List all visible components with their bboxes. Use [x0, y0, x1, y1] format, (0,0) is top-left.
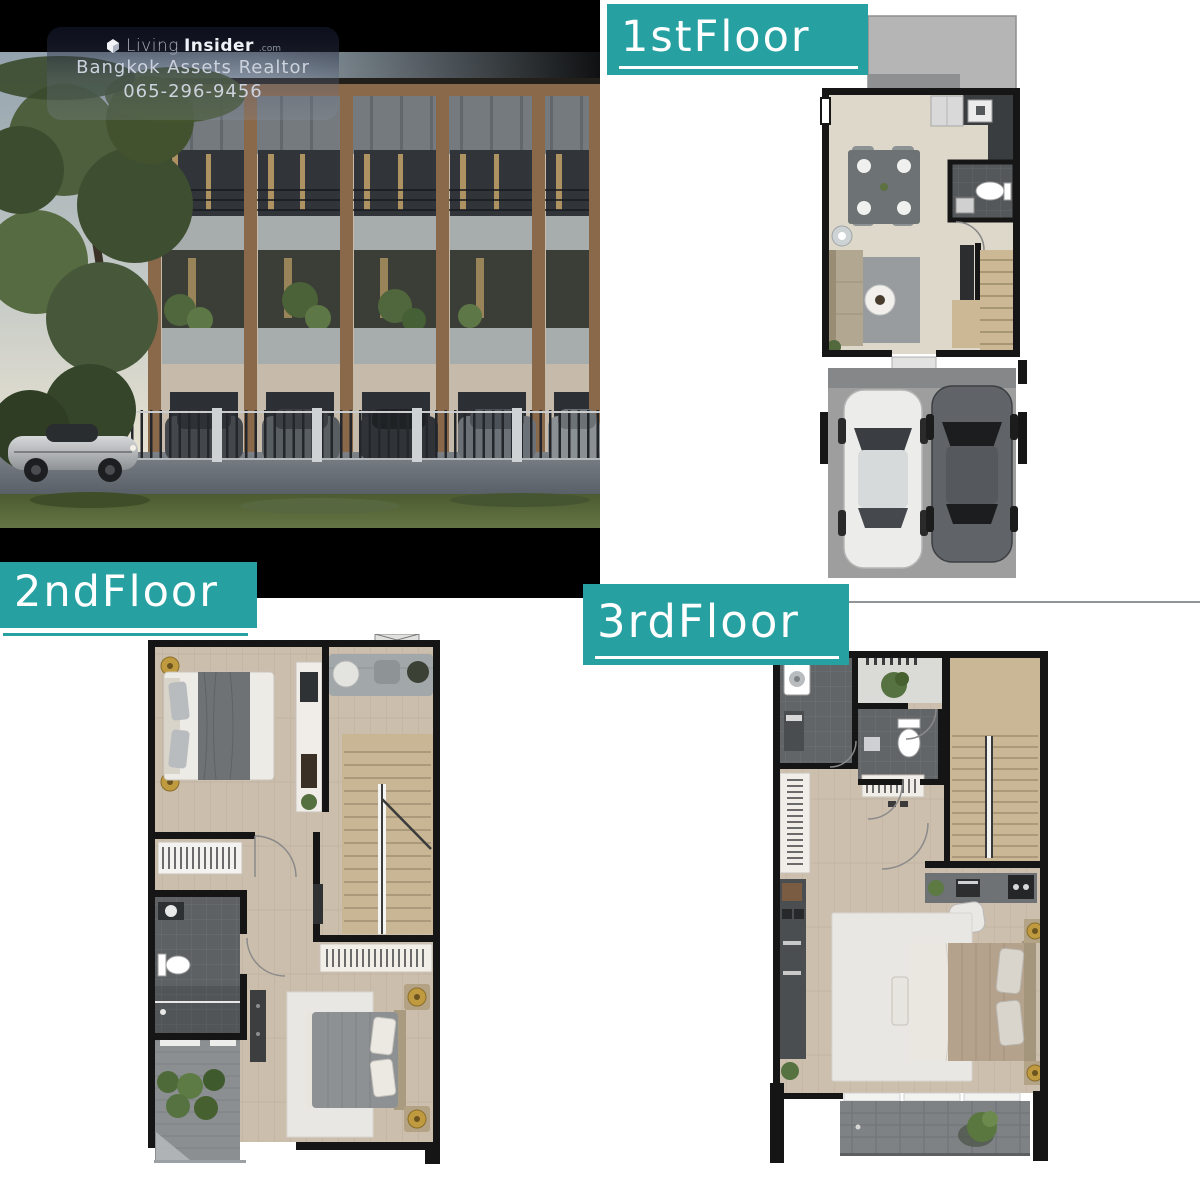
floor-label-2nd-text: 2ndFloor — [14, 567, 219, 617]
toilet-icon — [166, 956, 190, 974]
top-balcony — [858, 655, 942, 703]
plant-icon — [407, 661, 429, 683]
building-photo-panel: LivingInsider.com Bangkok Assets Realtor… — [0, 0, 600, 598]
laundry-room — [780, 658, 856, 766]
watermark-badge: LivingInsider.com Bangkok Assets Realtor… — [47, 27, 339, 120]
bathroom-3f — [858, 709, 942, 785]
stairs-2f — [342, 734, 433, 934]
floor-label-2nd: 2ndFloor — [0, 562, 257, 628]
floor-label-3rd: 3rdFloor — [583, 584, 849, 665]
watermark-brand-insider: Insider — [184, 36, 254, 56]
window — [821, 98, 830, 124]
bed-front — [164, 672, 274, 780]
bench — [892, 977, 908, 1025]
round-table — [333, 661, 359, 687]
plant-icon — [781, 1062, 799, 1080]
sink-icon — [165, 905, 177, 917]
floor-label-1st-text: 1stFloor — [621, 12, 811, 62]
watermark-phone: 065-296-9456 — [47, 80, 339, 104]
toilet-icon — [976, 182, 1004, 200]
floor-label-3rd-text: 3rdFloor — [597, 595, 800, 648]
third-floor-plan — [770, 641, 1052, 1165]
car-dark — [926, 386, 1018, 562]
watermark-brand: LivingInsider.com — [47, 36, 339, 56]
shelf-column — [780, 879, 806, 1080]
first-floor-plan — [818, 0, 1030, 596]
stairs-3f — [950, 658, 1040, 861]
floor-label-2nd-underline — [3, 633, 248, 636]
closet-rail — [158, 842, 242, 874]
plant-icon — [301, 794, 317, 810]
dresser — [250, 990, 266, 1062]
section-divider-line — [846, 601, 1200, 603]
townhouse-building — [148, 78, 600, 458]
listing-collage: LivingInsider.com Bangkok Assets Realtor… — [0, 0, 1200, 1200]
bed-rear — [306, 1010, 406, 1110]
dining-table — [848, 146, 920, 226]
balcony-garden — [155, 1040, 240, 1160]
bottom-balcony — [840, 1093, 1030, 1156]
grass — [0, 492, 600, 528]
garage — [820, 360, 1027, 578]
living-insider-cube-icon — [105, 38, 121, 54]
watermark-agency: Bangkok Assets Realtor — [47, 56, 339, 80]
entry-porch — [868, 16, 1016, 92]
floor-label-1st: 1stFloor — [607, 4, 868, 75]
watermark-brand-living: Living — [126, 36, 179, 56]
tv-console — [960, 245, 974, 303]
bathroom-2f — [155, 897, 240, 1033]
car-white — [838, 390, 928, 568]
bed-master — [910, 941, 1036, 1061]
floor-label-underline — [619, 66, 858, 69]
watermark-brand-com: .com — [259, 44, 281, 54]
second-floor-plan — [146, 634, 442, 1194]
floor-label-underline — [595, 656, 839, 659]
plant-icon — [928, 880, 944, 896]
toilet-icon — [898, 729, 920, 757]
sink-icon — [864, 737, 880, 751]
sitting-area — [329, 654, 433, 696]
